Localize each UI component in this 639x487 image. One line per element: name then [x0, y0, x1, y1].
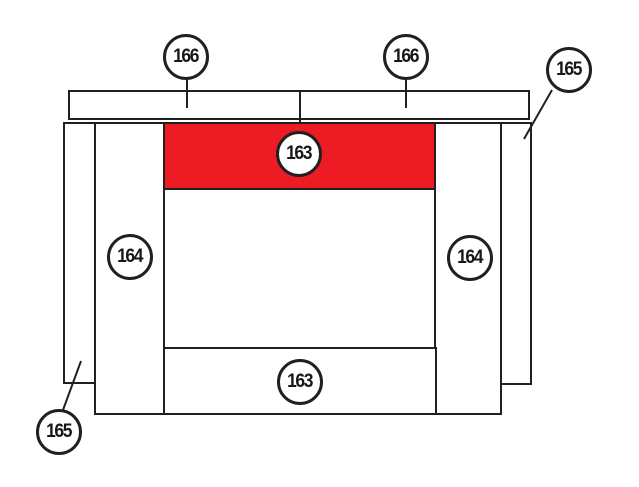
- callout-label: 163: [286, 143, 311, 165]
- part-outer-side-panel-left: [63, 122, 96, 384]
- callout-label: 166: [173, 46, 198, 68]
- callout-label: 166: [393, 46, 418, 68]
- callout-166-top-left: 166: [163, 34, 209, 80]
- callout-label: 164: [457, 247, 482, 269]
- callout-164-right: 164: [447, 235, 493, 281]
- callout-label: 165: [556, 59, 581, 81]
- callout-165-top-right: 165: [546, 47, 592, 93]
- callout-163-top: 163: [276, 131, 322, 177]
- callout-label: 165: [46, 421, 71, 443]
- callout-164-left: 164: [107, 234, 153, 280]
- callout-165-bottom-left: 165: [36, 409, 82, 455]
- parts-diagram: 166 166 165 164 164 163 163 165: [0, 0, 639, 487]
- callout-166-top-right: 166: [383, 34, 429, 80]
- part-outer-side-panel-right: [500, 122, 532, 385]
- callout-label: 164: [117, 246, 142, 268]
- callout-label: 163: [287, 371, 312, 393]
- top-bar-center-divider: [299, 90, 301, 123]
- callout-163-bottom: 163: [277, 359, 323, 405]
